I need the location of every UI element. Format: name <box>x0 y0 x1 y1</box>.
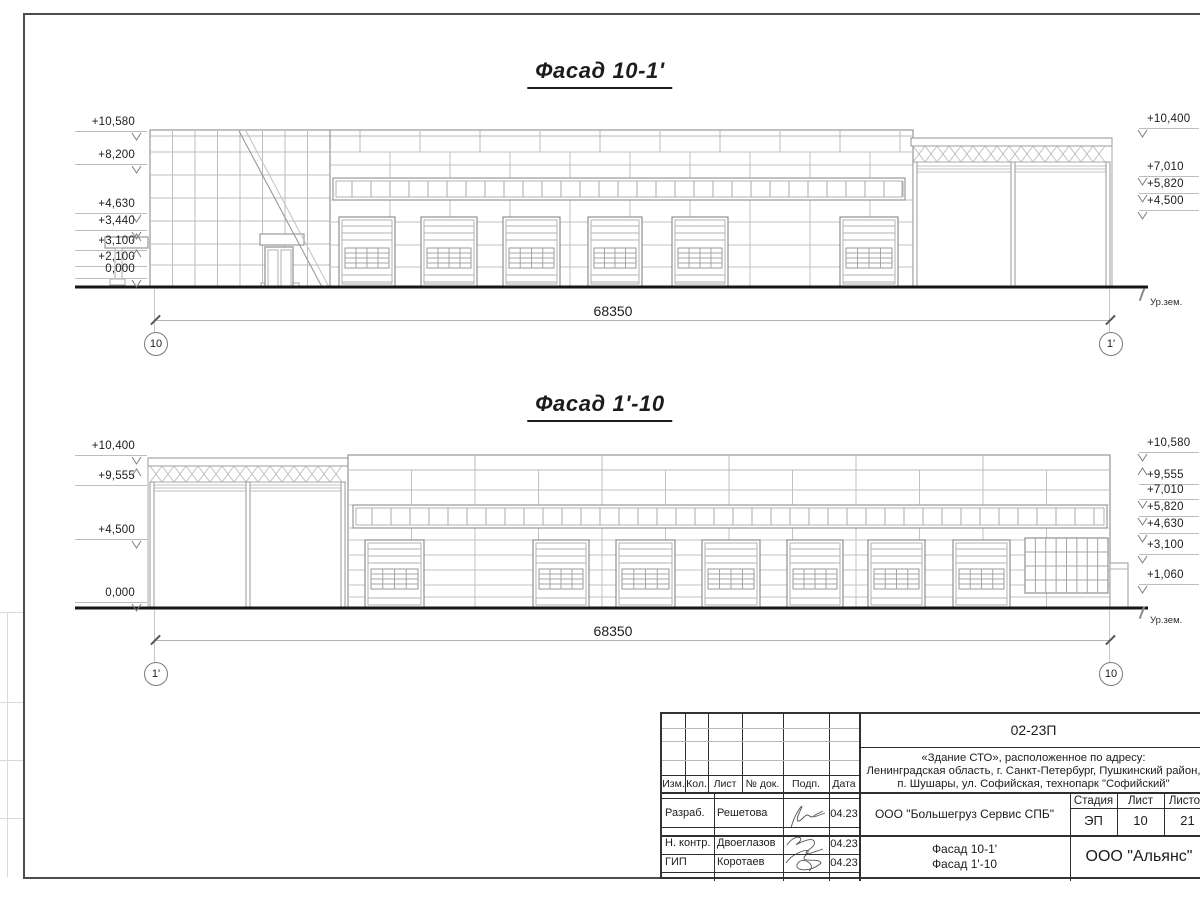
name-razrab: Решетова <box>717 807 781 819</box>
axis-label: 10 <box>150 338 162 350</box>
elevation-value: +10,580 <box>1147 437 1190 449</box>
elevation-tick-icon <box>131 540 142 549</box>
elevation-tick-icon <box>131 603 142 612</box>
elevation-value: +7,010 <box>1147 484 1184 496</box>
axis-label: 1' <box>152 668 160 680</box>
tb-header-podp: Подп. <box>783 777 829 791</box>
garage-door <box>584 217 646 287</box>
elevation-value: +3,440 <box>98 215 135 227</box>
facade1-title: Фасад 10-1' <box>527 58 672 89</box>
drawing-title-line2: Фасад 1'-10 <box>859 857 1070 871</box>
object-address-line3: п. Шушары, ул. Софийская, технопарк "Соф… <box>859 778 1200 790</box>
elevation-leader <box>1139 584 1199 585</box>
elevation-value: +3,100 <box>1147 539 1184 551</box>
tb-divider <box>662 775 859 776</box>
side-stamp-line <box>0 818 23 819</box>
elevation-value: +10,400 <box>92 440 135 452</box>
clerestory-band <box>353 505 1107 528</box>
extension-line <box>1109 289 1110 332</box>
doc-code: 02-23П <box>859 722 1200 738</box>
elevation-tick-icon <box>131 165 142 174</box>
elevation-value: +4,630 <box>1147 518 1184 530</box>
drawing-sheet: Фасад 10-1' +10,580+8,200+4,630+3,440+3,… <box>0 0 1200 900</box>
side-stamp-line <box>0 760 23 761</box>
elevation-value: +7,010 <box>1147 161 1184 173</box>
organization: ООО "Альянс" <box>1070 848 1200 866</box>
tb-header-list: Лист <box>708 777 742 791</box>
axis-label: 1' <box>1107 338 1115 350</box>
garage-door <box>836 217 902 287</box>
elevation-leader <box>1139 176 1199 177</box>
object-address-line2: Ленинградская область, г. Санкт-Петербур… <box>859 765 1200 777</box>
elevation-leader <box>1139 452 1199 453</box>
elevation-leader <box>1139 210 1199 211</box>
elevation-tick-icon <box>131 132 142 141</box>
side-stamp-line <box>0 612 23 613</box>
elevation-value: 0,000 <box>105 587 135 599</box>
tb-divider <box>662 760 859 761</box>
tb-divider <box>662 827 859 828</box>
tb-divider <box>662 728 859 729</box>
elevation-value: 0,000 <box>105 263 135 275</box>
tb-divider <box>1070 808 1200 809</box>
tb-header-data: Дата <box>829 777 859 791</box>
tb-divider <box>662 792 1200 794</box>
dimension-line <box>155 640 1110 641</box>
elevation-value: +1,060 <box>1147 569 1184 581</box>
stage-header: Стадия <box>1070 794 1117 808</box>
clerestory-band <box>333 178 905 200</box>
tb-divider <box>685 714 686 792</box>
name-gip: Коротаев <box>717 856 781 868</box>
tb-header-kol: Кол. <box>685 777 708 791</box>
tb-header-izm: Изм. <box>662 777 685 791</box>
garage-door <box>864 540 929 608</box>
tb-divider <box>662 741 859 742</box>
elevation-tick-icon <box>1137 467 1148 476</box>
garage-door <box>612 540 679 608</box>
extension-line <box>154 289 155 332</box>
canopy <box>911 138 1112 287</box>
tb-divider <box>1117 792 1118 835</box>
extension-line <box>1109 610 1110 662</box>
drawing-title-line1: Фасад 10-1' <box>859 842 1070 856</box>
role-razrab: Разраб. <box>665 807 713 819</box>
sheet-header: Лист <box>1117 794 1164 808</box>
tb-divider <box>662 835 1200 837</box>
date-razrab: 04.23 <box>829 807 859 821</box>
tb-divider <box>742 714 743 792</box>
ground-label-text: Ур.зем. <box>1150 615 1182 626</box>
elevation-leader <box>1139 516 1199 517</box>
elevation-leader <box>1139 533 1199 534</box>
tb-header-ndok: № док. <box>742 777 783 791</box>
garage-door <box>361 540 428 608</box>
elevation-value: +9,555 <box>1147 469 1184 481</box>
axis-label: 10 <box>1105 668 1117 680</box>
sheet-number: 10 <box>1117 814 1164 828</box>
elevation-value: +4,630 <box>98 198 135 210</box>
role-gip: ГИП <box>665 856 713 868</box>
elevation-tick-icon <box>131 249 142 258</box>
elevation-leader <box>1139 499 1199 500</box>
tb-divider <box>1164 792 1165 835</box>
tb-divider <box>708 714 709 792</box>
garage-door <box>335 217 399 287</box>
frame-top <box>23 13 1200 15</box>
side-stamp-line <box>7 612 8 877</box>
title-block: Изм. Кол. Лист № док. Подп. Дата 02-23П … <box>660 712 1200 879</box>
object-address-line1: «Здание СТО», расположенное по адресу: <box>859 752 1200 764</box>
tb-divider <box>859 747 1200 748</box>
axis-bubble-left: 10 <box>144 332 168 356</box>
elevation-value: +10,400 <box>1147 113 1190 125</box>
date-gip: 04.23 <box>829 856 859 870</box>
elevation-tick-icon <box>131 456 142 465</box>
tb-divider <box>662 798 859 799</box>
tb-divider <box>662 872 859 873</box>
stage-value: ЭП <box>1070 814 1117 828</box>
garage-door <box>499 217 564 287</box>
side-stamp-line <box>0 702 23 703</box>
dimension-line <box>155 320 1110 321</box>
elevation-leader <box>1139 193 1199 194</box>
elevation-value: +3,100 <box>98 235 135 247</box>
ground-level-label: Ур.зем. <box>1150 615 1182 626</box>
elevation-tick-icon <box>1137 129 1148 138</box>
facade2-title: Фасад 1'-10 <box>527 391 672 422</box>
axis-bubble-left: 1' <box>144 662 168 686</box>
axis-bubble-right: 1' <box>1099 332 1123 356</box>
elevation-tick-icon <box>131 468 142 477</box>
elevation-value: +4,500 <box>98 524 135 536</box>
garage-door <box>783 540 847 608</box>
facade1-drawing <box>75 105 1165 305</box>
elevation-tick-icon <box>1137 211 1148 220</box>
ground-label-text: Ур.зем. <box>1150 297 1182 308</box>
sheets-total: 21 <box>1164 814 1200 828</box>
elevation-value: +9,555 <box>98 470 135 482</box>
garage-door <box>698 540 764 608</box>
elevation-tick-icon <box>1137 585 1148 594</box>
axis-bubble-right: 10 <box>1099 662 1123 686</box>
tb-divider <box>662 854 859 855</box>
elevation-leader <box>1139 554 1199 555</box>
garage-door <box>949 540 1014 608</box>
elevation-leader <box>75 485 147 486</box>
sheets-total-header: Листов <box>1164 794 1200 808</box>
extension-line <box>154 610 155 662</box>
name-nkontr: Двоеглазов <box>717 837 781 849</box>
garage-door <box>529 540 593 608</box>
date-nkontr: 04.23 <box>829 837 859 851</box>
facade2-drawing <box>75 435 1165 635</box>
elevation-value: +2,100 <box>98 251 135 263</box>
elevation-value: +5,820 <box>1147 178 1184 190</box>
elevation-value: +10,580 <box>92 116 135 128</box>
tb-divider <box>859 714 861 881</box>
garage-door <box>668 217 732 287</box>
garage-door <box>417 217 481 287</box>
dimension-label: 68350 <box>553 623 673 639</box>
canopy <box>148 458 348 608</box>
elevation-value: +8,200 <box>98 149 135 161</box>
elevation-tick-icon <box>1137 453 1148 462</box>
elevation-value: +5,820 <box>1147 501 1184 513</box>
elevation-tick-icon <box>131 233 142 242</box>
elevation-tick-icon <box>1137 555 1148 564</box>
storefront-window <box>1025 538 1108 593</box>
ground-level-label: Ур.зем. <box>1150 297 1182 308</box>
role-nkontr: Н. контр. <box>665 837 713 849</box>
side-annex <box>1110 563 1128 607</box>
frame-left <box>23 13 25 879</box>
dimension-label: 68350 <box>553 303 673 319</box>
signature-razrab <box>784 798 830 834</box>
customer: ООО "Большегруз Сервис СПБ" <box>859 807 1070 821</box>
elevation-value: +4,500 <box>1147 195 1184 207</box>
elevation-tick-icon <box>131 279 142 288</box>
elevation-leader <box>1139 128 1199 129</box>
